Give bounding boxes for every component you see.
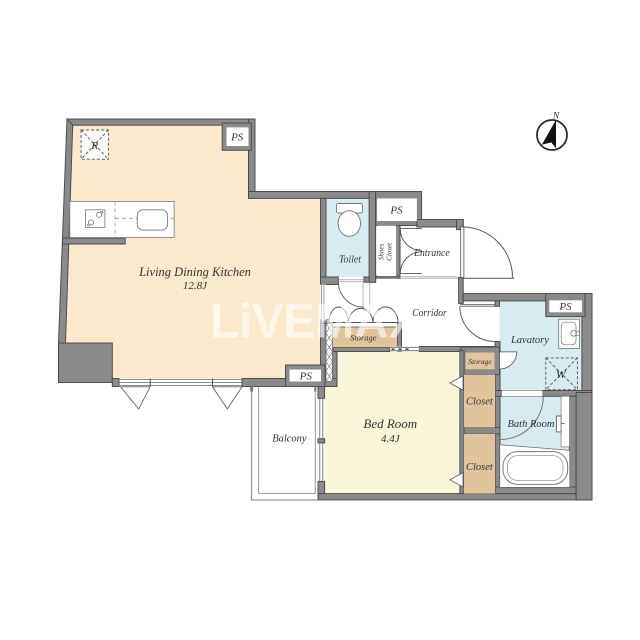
svg-text:Lavatory: Lavatory <box>510 335 549 346</box>
svg-text:Shoes: Shoes <box>378 243 386 260</box>
svg-text:Living Dining Kitchen: Living Dining Kitchen <box>138 265 251 279</box>
svg-text:PS: PS <box>389 205 403 217</box>
svg-text:Balcony: Balcony <box>272 434 307 445</box>
svg-text:Toilet: Toilet <box>339 255 361 266</box>
svg-text:4.4J: 4.4J <box>381 433 401 445</box>
svg-text:PS: PS <box>558 301 572 313</box>
svg-text:Closet: Closet <box>386 242 394 261</box>
svg-text:Bath Room: Bath Room <box>508 418 555 430</box>
svg-text:Bed Room: Bed Room <box>363 416 417 431</box>
svg-text:Corridor: Corridor <box>412 308 447 319</box>
svg-text:Closet: Closet <box>466 397 494 408</box>
svg-text:PS: PS <box>299 370 313 382</box>
svg-text:12.8J: 12.8J <box>183 280 208 292</box>
svg-text:W: W <box>556 367 567 381</box>
svg-text:PS: PS <box>230 131 244 143</box>
svg-text:Closet: Closet <box>466 462 494 473</box>
svg-text:Storage: Storage <box>468 357 492 366</box>
svg-text:Entrance: Entrance <box>413 248 450 259</box>
svg-text:R: R <box>90 140 98 152</box>
svg-text:Storage: Storage <box>350 332 377 342</box>
svg-text:N: N <box>552 111 560 121</box>
svg-text:LiVEMAX: LiVEMAX <box>210 296 420 349</box>
